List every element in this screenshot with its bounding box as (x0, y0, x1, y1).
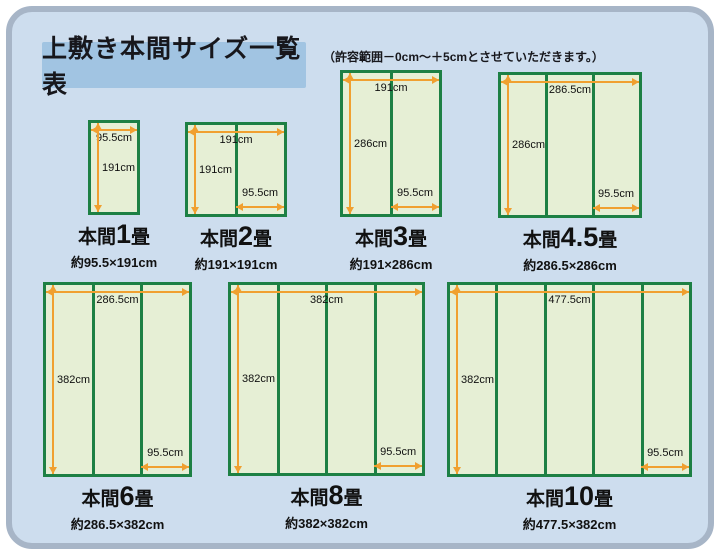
page-title: 上敷き本間サイズ一覧表 (42, 42, 306, 88)
height-arrow (52, 285, 54, 474)
tolerance-note: （許容範囲－0cm～＋5cmとさせていただきます。） (323, 48, 604, 65)
arrowhead-right (182, 463, 189, 471)
diagram-size-label: 約477.5×382cm (523, 514, 617, 533)
diagram-size-label: 約286.5×382cm (71, 514, 165, 533)
width-arrow (501, 81, 639, 83)
tatami-column (280, 285, 329, 473)
tatami-column (95, 285, 144, 474)
width-arrow (46, 291, 189, 293)
caption-prefix: 本間 (81, 489, 119, 510)
width-dimension-label: 286.5cm (46, 294, 189, 306)
arrowhead-up (49, 285, 57, 292)
caption-number: 2 (238, 221, 253, 251)
caption-prefix: 本間 (523, 230, 561, 251)
diagram-size-label: 約382×382cm (285, 513, 368, 532)
arrowhead-down (49, 467, 57, 474)
tatami-rect: 95.5cm 191cm (88, 120, 140, 215)
arrowhead-down (191, 207, 199, 214)
width-arrow (231, 291, 422, 293)
height-arrow (97, 123, 99, 212)
mat-width-arrow (641, 466, 689, 468)
arrowhead-left (236, 203, 243, 211)
height-dimension-label: 191cm (102, 162, 135, 174)
caption-suffix: 畳 (344, 488, 363, 509)
arrowhead-up (94, 123, 102, 130)
tatami-rect: 286.5cm 382cm 95.5cm (43, 282, 192, 477)
arrowhead-left (374, 462, 381, 470)
caption-prefix: 本間 (290, 488, 328, 509)
width-dimension-label: 286.5cm (501, 84, 639, 96)
tatami-column (548, 75, 595, 215)
width-arrow (343, 79, 439, 81)
width-arrow (188, 131, 284, 133)
arrowhead-down (94, 205, 102, 212)
arrowhead-left (391, 203, 398, 211)
width-dimension-label: 191cm (188, 134, 284, 146)
height-dimension-label: 191cm (199, 164, 232, 176)
diagram-size-label: 約95.5×191cm (71, 252, 157, 271)
arrowhead-right (632, 204, 639, 212)
diagram-honma-3jo: 191cm 286cm 95.5cm 本間3畳 約191×286cm (340, 70, 442, 217)
height-dimension-label: 286cm (512, 139, 545, 151)
arrowhead-up (453, 285, 461, 292)
tatami-column (547, 285, 595, 474)
arrowhead-right (277, 203, 284, 211)
height-dimension-label: 382cm (57, 374, 90, 386)
diagram-caption: 本間10畳 (526, 483, 613, 513)
caption-number: 4.5 (561, 222, 599, 252)
diagram-honma-1jo: 95.5cm 191cm 本間1畳 約95.5×191cm (88, 120, 140, 215)
caption-prefix: 本間 (526, 489, 564, 510)
caption-number: 10 (564, 481, 594, 511)
arrowhead-left (641, 463, 648, 471)
height-arrow (349, 73, 351, 214)
mat-width-arrow (391, 206, 439, 208)
tatami-column (644, 285, 689, 474)
tatami-rect: 191cm 286cm 95.5cm (340, 70, 442, 217)
arrowhead-up (234, 285, 242, 292)
width-dimension-label: 191cm (343, 82, 439, 94)
caption-suffix: 畳 (594, 489, 613, 510)
diagram-honma-4-5jo: 286.5cm 286cm 95.5cm 本間4.5畳 約286.5×286cm (498, 72, 642, 218)
caption-prefix: 本間 (355, 229, 393, 250)
tatami-column (377, 285, 423, 473)
diagram-caption: 本間8畳 (290, 482, 362, 512)
caption-suffix: 畳 (131, 227, 150, 248)
width-arrow (450, 291, 689, 293)
caption-suffix: 畳 (253, 229, 272, 250)
caption-prefix: 本間 (78, 227, 116, 248)
arrowhead-left (593, 204, 600, 212)
arrowhead-up (191, 125, 199, 132)
caption-number: 1 (116, 219, 131, 249)
diagram-honma-10jo: 477.5cm 382cm 95.5cm 本間10畳 約477.5×382cm (447, 282, 692, 477)
diagram-size-label: 約191×286cm (350, 254, 433, 273)
diagram-size-label: 約286.5×286cm (523, 255, 617, 274)
caption-number: 6 (119, 481, 134, 511)
height-dimension-label: 382cm (242, 373, 275, 385)
diagram-honma-6jo: 286.5cm 382cm 95.5cm 本間6畳 約286.5×382cm (43, 282, 192, 477)
mat-width-dimension-label: 95.5cm (641, 447, 689, 459)
tatami-column (328, 285, 377, 473)
mat-width-dimension-label: 95.5cm (141, 447, 189, 459)
diagram-honma-8jo: 382cm 382cm 95.5cm 本間8畳 約382×382cm (228, 282, 425, 476)
height-arrow (507, 75, 509, 215)
mat-width-arrow (141, 466, 189, 468)
height-dimension-label: 286cm (354, 138, 387, 150)
diagram-size-label: 約191×191cm (195, 254, 278, 273)
mat-width-dimension-label: 95.5cm (391, 187, 439, 199)
mat-width-dimension-label: 95.5cm (236, 187, 284, 199)
caption-suffix: 畳 (598, 230, 617, 251)
mat-width-arrow (593, 207, 639, 209)
main-panel: 上敷き本間サイズ一覧表 （許容範囲－0cm～＋5cmとさせていただきます。） 9… (6, 6, 714, 549)
height-dimension-label: 382cm (461, 374, 494, 386)
arrowhead-up (504, 75, 512, 82)
mat-width-dimension-label: 95.5cm (374, 446, 422, 458)
tatami-column (595, 285, 643, 474)
caption-number: 3 (393, 221, 408, 251)
diagram-caption: 本間1畳 (78, 221, 150, 251)
diagram-caption: 本間3畳 (355, 223, 427, 253)
arrowhead-down (504, 208, 512, 215)
mat-width-dimension-label: 95.5cm (593, 188, 639, 200)
diagram-caption: 本間6畳 (81, 483, 153, 513)
caption-number: 8 (328, 480, 343, 510)
mat-width-arrow (236, 206, 284, 208)
tatami-column (498, 285, 546, 474)
caption-suffix: 畳 (408, 229, 427, 250)
width-dimension-label: 382cm (231, 294, 422, 306)
arrowhead-right (415, 462, 422, 470)
tatami-rect: 286.5cm 286cm 95.5cm (498, 72, 642, 218)
height-arrow (237, 285, 239, 473)
arrowhead-right (682, 463, 689, 471)
diagram-caption: 本間4.5畳 (523, 224, 618, 254)
width-dimension-label: 477.5cm (450, 294, 689, 306)
caption-prefix: 本間 (200, 229, 238, 250)
tatami-rect: 382cm 382cm 95.5cm (228, 282, 425, 476)
arrowhead-down (453, 467, 461, 474)
tatami-rect: 191cm 191cm 95.5cm (185, 122, 287, 217)
height-arrow (456, 285, 458, 474)
arrowhead-left (141, 463, 148, 471)
tatami-column (143, 285, 189, 474)
diagram-honma-2jo: 191cm 191cm 95.5cm 本間2畳 約191×191cm (185, 122, 287, 217)
arrowhead-down (234, 466, 242, 473)
diagram-caption: 本間2畳 (200, 223, 272, 253)
arrowhead-up (346, 73, 354, 80)
height-arrow (194, 125, 196, 214)
caption-suffix: 畳 (135, 489, 154, 510)
mat-width-arrow (374, 465, 422, 467)
arrowhead-right (432, 203, 439, 211)
arrowhead-down (346, 207, 354, 214)
tatami-rect: 477.5cm 382cm 95.5cm (447, 282, 692, 477)
